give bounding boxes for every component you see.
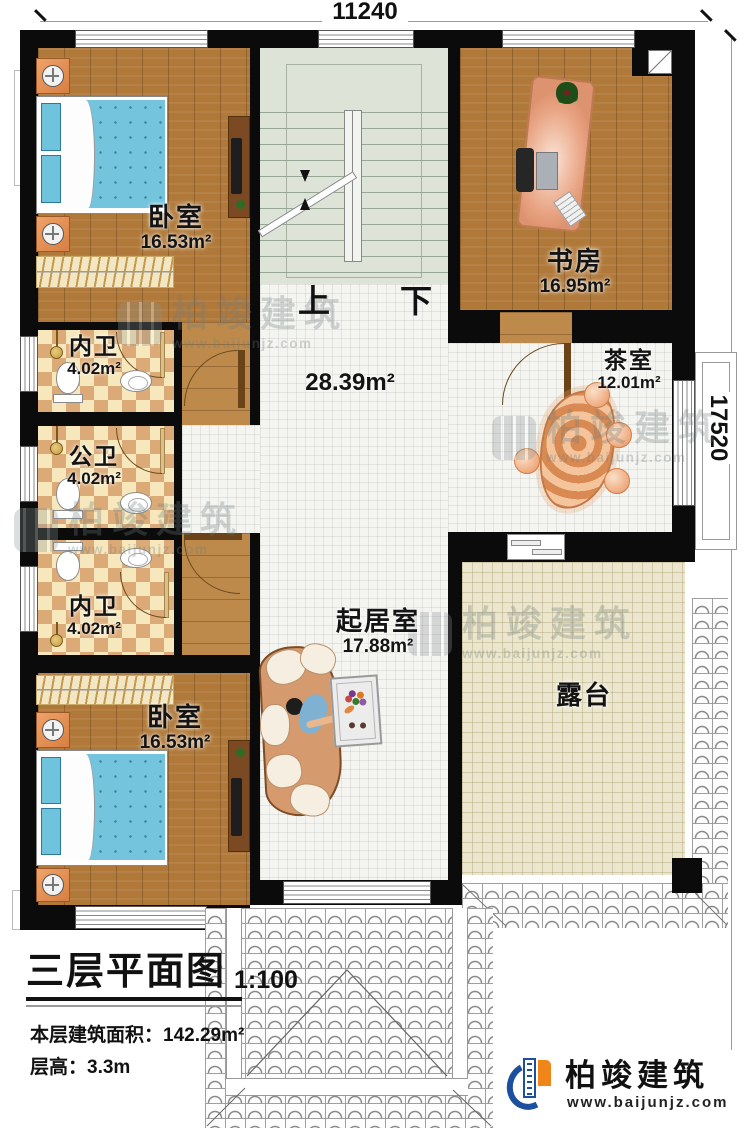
- monitor-icon: [536, 152, 558, 190]
- slider-panel: [511, 540, 541, 546]
- bath-public-label: 公卫 4.02m²: [56, 444, 132, 488]
- pillow: [41, 155, 61, 203]
- title-underline: [26, 997, 242, 1001]
- logo-tower: [523, 1058, 536, 1098]
- toilet-tank: [53, 394, 83, 403]
- stair-arrow-icon: [300, 170, 310, 182]
- title-block: 三层平面图 1:100: [26, 940, 298, 995]
- study-door-opening: [500, 312, 572, 343]
- lamp-icon: [42, 719, 64, 741]
- nightstand: [36, 712, 70, 748]
- lamp-icon: [42, 223, 64, 245]
- watermark-logo-icon: [492, 416, 536, 460]
- tv-icon: [231, 778, 242, 836]
- monitor-icon: [231, 138, 242, 194]
- blanket: [61, 100, 95, 208]
- stair-arrow-icon: [300, 198, 310, 210]
- pillow: [41, 757, 61, 804]
- study-label: 书房 16.95m²: [515, 248, 635, 297]
- blanket: [61, 754, 95, 860]
- pillow: [41, 103, 61, 151]
- stairwell: [260, 48, 448, 284]
- hall-area-label: 28.39m²: [295, 370, 405, 395]
- watermark-logo-icon: [14, 508, 58, 552]
- wardrobe: [36, 675, 174, 705]
- bath-inner2-label: 内卫 4.02m²: [56, 594, 132, 638]
- dimension-tick: [700, 9, 712, 21]
- brand-logo: 柏竣建筑 www.baijunjz.com: [505, 1050, 745, 1124]
- watermark: 柏竣建筑 www.baijunjz.com: [408, 606, 638, 661]
- plant-icon: [236, 200, 245, 209]
- window: [318, 30, 414, 48]
- nightstand: [36, 216, 70, 252]
- pillow: [41, 808, 61, 855]
- bedroom-bottom-label: 卧室 16.53m²: [115, 704, 235, 753]
- coffee-table: [330, 674, 383, 747]
- floor-area-row: 本层建筑面积：142.29m²: [30, 1020, 244, 1047]
- brand-website: www.baijunjz.com: [567, 1094, 728, 1111]
- floor-height-value: 3.3m: [87, 1057, 130, 1078]
- floor-height-label: 层高：: [30, 1057, 87, 1078]
- floor-area-label: 本层建筑面积：: [30, 1025, 163, 1046]
- plan-title: 三层平面图: [26, 940, 226, 995]
- floor-plan-canvas: 11240 17520: [0, 0, 750, 1128]
- title-underline-thin: [26, 1005, 242, 1007]
- wardrobe: [36, 256, 174, 288]
- terrace-slider-door: [507, 534, 565, 560]
- bed: [36, 750, 168, 866]
- nightstand: [36, 868, 70, 902]
- flue: [648, 50, 672, 74]
- window: [283, 881, 431, 904]
- window: [75, 906, 207, 929]
- terrace-label: 露台: [538, 682, 630, 709]
- stair-rail: [344, 110, 362, 262]
- brand-logo-icon: [505, 1052, 559, 1118]
- office-chair: [516, 148, 534, 192]
- window: [75, 30, 208, 48]
- brand-company: 柏竣建筑: [565, 1050, 709, 1095]
- plan-scale: 1:100: [234, 966, 298, 995]
- logo-roof: [538, 1060, 551, 1086]
- lamp-cord: [56, 426, 58, 442]
- tea-room-label: 茶室 12.01m²: [583, 348, 675, 392]
- floor-area-value: 142.29m²: [163, 1025, 244, 1046]
- window: [502, 30, 635, 48]
- stairs-down-label: 下: [398, 276, 434, 322]
- floor-height-row: 层高：3.3m: [30, 1052, 130, 1079]
- floor-cushion: [604, 468, 630, 494]
- nightstand: [36, 58, 70, 94]
- coffee-table-inner: [336, 681, 376, 741]
- dimension-tick: [34, 9, 46, 21]
- plant-icon: [236, 748, 245, 757]
- watermark: 柏竣建筑 www.baijunjz.com: [14, 502, 244, 557]
- sofa-cushion: [260, 704, 290, 746]
- window: [20, 336, 38, 392]
- plant-icon: [556, 82, 578, 104]
- top-dimension-label: 11240: [322, 0, 408, 24]
- slider-panel: [532, 549, 562, 555]
- bed: [36, 96, 168, 214]
- bath-inner1-label: 内卫 4.02m²: [56, 334, 132, 378]
- watermark: 柏竣建筑 www.baijunjz.com: [492, 410, 722, 465]
- bedroom-top-label: 卧室 16.53m²: [118, 204, 234, 253]
- lamp-icon: [42, 65, 64, 87]
- lamp-icon: [42, 874, 64, 896]
- window: [20, 566, 38, 632]
- bedroom-top-door: [238, 350, 245, 408]
- stairs-up-label: 上: [296, 276, 332, 322]
- window: [20, 446, 38, 502]
- living-room-label: 起居室 17.88m²: [318, 608, 438, 657]
